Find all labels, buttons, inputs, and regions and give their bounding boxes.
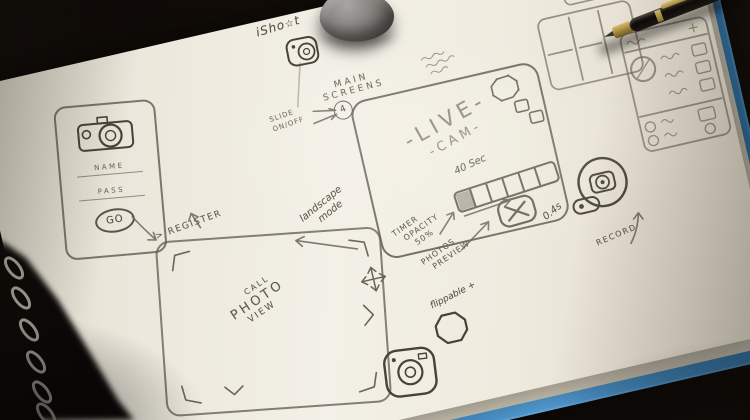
- photo-of-wireframe-sketchbook: iSho☆t MAIN SCREENS: [0, 0, 750, 420]
- filmstrip-arrow: [463, 197, 512, 216]
- register-up-arrow: [187, 212, 200, 230]
- timer-note-arrow: [436, 212, 458, 234]
- landscape-note-arrow: [295, 226, 357, 262]
- logo-connector-line: [288, 63, 309, 107]
- spiral-binding: [0, 0, 180, 420]
- slide-note-arrows: [311, 106, 337, 123]
- preview-note-arrow: [457, 222, 493, 250]
- record-up-arrow: [625, 212, 648, 243]
